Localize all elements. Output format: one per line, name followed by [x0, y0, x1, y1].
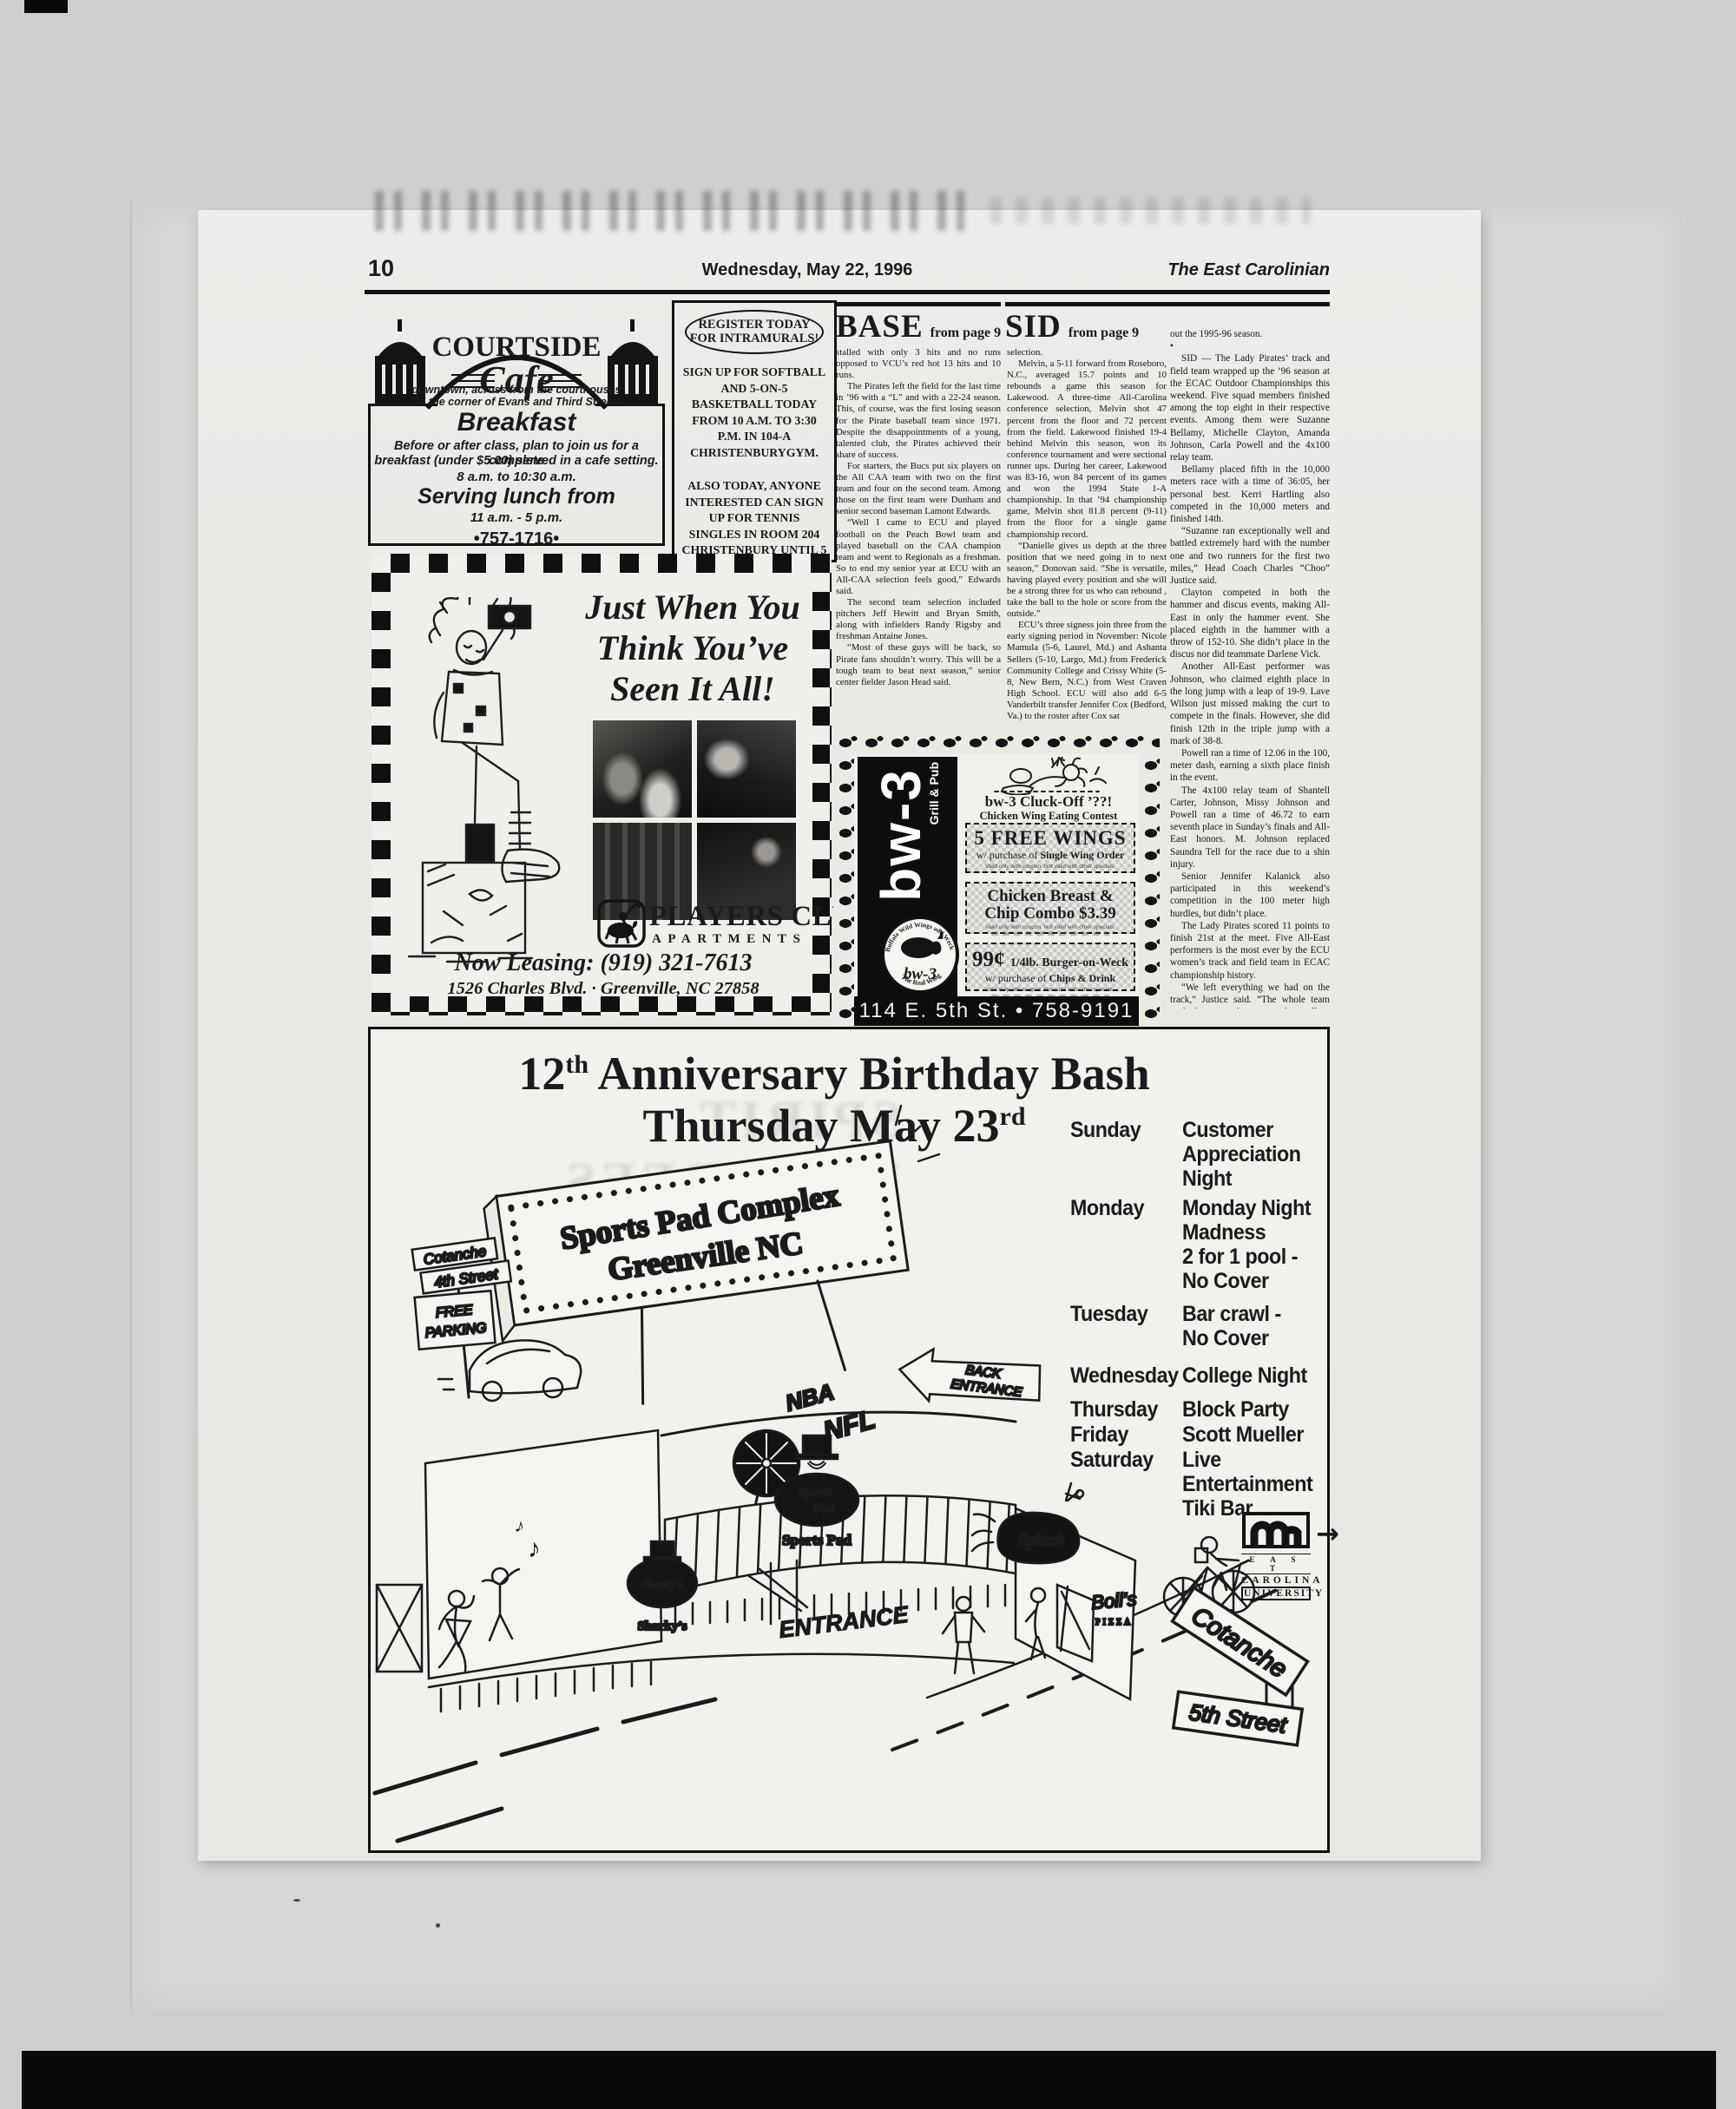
- free-parking-sign: FREE PARKING: [415, 1291, 496, 1349]
- bw3-address-bar: 114 E. 5th St. • 758-9191: [854, 996, 1139, 1026]
- ink-bleed-ghost-top: [375, 191, 983, 231]
- sid-section-bullet: •: [1170, 340, 1330, 352]
- svg-text:Pad: Pad: [812, 1501, 835, 1515]
- bw3-buffalo-border-top: [833, 732, 1160, 754]
- courtside-lunch-heading: Serving lunch from: [368, 484, 665, 509]
- publication-name: The East Carolinian: [1042, 260, 1330, 280]
- sid-paragraph: SID — The Lady Pirates’ track and field …: [1170, 352, 1330, 463]
- bw3-vertical-brand: bw-3 Grill & Pub: [859, 757, 957, 913]
- billboard-rays: [896, 1106, 939, 1161]
- wing-eater-cartoon: [969, 757, 1134, 795]
- base-paragraph: For starters, the Bucs put six players o…: [836, 461, 1001, 517]
- intramurals-body-1: SIGN UP FOR SOFTBALL AND 5-ON-5 BASKETBA…: [681, 365, 827, 461]
- coupon-fine-print: Valid only with coupon. Not valid with o…: [967, 864, 1134, 870]
- courtside-body-2: breakfast (under $5.00) served in a cafe…: [368, 454, 665, 469]
- bw3-logo-wordmark: bw-3: [904, 965, 937, 983]
- back-entrance-sign: BACK ENTRANCE: [896, 1345, 1043, 1415]
- bw3-round-logo: Buffalo Wild Wings and Weck The Real Win…: [880, 915, 960, 995]
- bw3-coupon-burger-weck: 99¢ 1/4lb. Burger-on-Weck w/ purchase of…: [965, 943, 1135, 991]
- bw3-buffalo-border-right: [1139, 754, 1160, 1047]
- coupon-headline: 5 FREE WINGS: [967, 828, 1134, 849]
- bw3-coupon-chicken-combo: Chicken Breast & Chip Combo $3.39 Valid …: [965, 882, 1135, 934]
- players-headline-line3: Seen It All!: [562, 668, 823, 709]
- coupon-fine-print: Valid only with coupon. Not valid with o…: [967, 987, 1134, 993]
- scan-black-bar: [22, 2051, 1716, 2109]
- coupon-item: 1/4lb. Burger-on-Weck: [1010, 956, 1128, 969]
- svg-text:Splash: Splash: [1018, 1531, 1064, 1550]
- sid-paragraph: out the 1995-96 season.: [1170, 328, 1330, 340]
- players-leasing-phone: Now Leasing: (919) 321-7613: [399, 949, 807, 977]
- jester-illustration: [386, 597, 570, 989]
- sid-paragraph: Senior Jennifer Kalanick also participat…: [1170, 871, 1330, 920]
- intramurals-title-2: FOR INTRAMURALS!: [688, 332, 820, 345]
- polo-player-icon: [597, 899, 646, 948]
- scan-speck: [293, 1899, 300, 1902]
- base-paragraph: The Pirates left the field for the last …: [836, 381, 1001, 461]
- ecu-east: E A S T: [1241, 1554, 1311, 1574]
- bw3-grill-pub: Grill & Pub: [927, 762, 941, 825]
- ecu-university: UNIVERSITY: [1241, 1587, 1311, 1600]
- scanned-newspaper-page: { "page": { "number": "10", "date": "Wed…: [0, 0, 1736, 2109]
- bw3-buffalo-border-left: [833, 754, 854, 1047]
- coupon-sub-bold: Single Wing Order: [1040, 849, 1124, 861]
- sid-paragraph: Another All-East performer was Johnson, …: [1170, 660, 1330, 746]
- sid-article-headline: SIDfrom page 9: [1005, 308, 1139, 345]
- sid-paragraph: “We left everything we had on the track,…: [1170, 982, 1330, 1009]
- coupon-price: 99¢: [972, 948, 1010, 971]
- sid-paragraph: “Suzanne ran exceptionally well and batt…: [1170, 525, 1330, 587]
- coupon-sub-bold: Chips & Drink: [1049, 972, 1115, 984]
- players-headline-line1: Just When You: [562, 587, 823, 627]
- ecu-logo: E A S T CAROLINA UNIVERSITY: [1241, 1512, 1311, 1600]
- base-slug: BASE: [836, 309, 924, 345]
- doorway-figure: [943, 1597, 984, 1673]
- players-address: 1526 Charles Blvd. · Greenville, NC 2785…: [399, 979, 807, 999]
- road-dashes: [375, 1699, 715, 1841]
- courtside-cafe-ad: COURTSIDE Cafe downtown, across from the…: [368, 302, 665, 547]
- base-paragraph: “Well I came to ECU and played football …: [836, 517, 1001, 597]
- ecu-carolina: CAROLINA: [1241, 1574, 1311, 1587]
- base-article-body: stalled with only 3 hits and no runs opp…: [836, 347, 1001, 746]
- base-paragraph: stalled with only 3 hits and no runs opp…: [836, 347, 1001, 381]
- coupon-sub-prefix: w/ purchase of: [976, 849, 1041, 861]
- players-photo-1: [593, 720, 692, 818]
- sid-paragraph: Melvin, a 5-11 forward from Roseboro, N.…: [1007, 358, 1167, 541]
- sid-slug: SID: [1005, 309, 1062, 345]
- page-date: Wednesday, May 22, 1996: [521, 260, 1094, 280]
- sid-paragraph: selection.: [1007, 347, 1167, 358]
- header-rule: [365, 290, 1330, 294]
- bw3-wordmark: bw-3: [875, 757, 927, 913]
- courtside-lunch-hours: 11 a.m. - 5 p.m.: [368, 510, 665, 525]
- players-headline-line2: Think You’ve: [562, 627, 823, 668]
- svg-text:Sports: Sports: [799, 1486, 832, 1500]
- coupon-headline-2: Chip Combo $3.39: [967, 905, 1134, 923]
- sid-from-label: from page 9: [1069, 325, 1139, 340]
- base-article-rule: [836, 302, 1001, 306]
- courtside-breakfast-hours: 8 a.m. to 10:30 a.m.: [368, 470, 665, 484]
- illegible-fine-print: [991, 932, 1109, 936]
- bolis-pizza-label: PIZZA: [1095, 1618, 1133, 1627]
- sharkys-caption: Sharky’s: [638, 1620, 687, 1633]
- sid-paragraph: Powell ran a time of 12.06 in the 100, m…: [1170, 747, 1330, 785]
- players-photo-2: [697, 720, 796, 818]
- sid-article-rule: [1005, 302, 1330, 306]
- bw3-contest-title: bw-3 Cluck-Off ’??!: [962, 793, 1135, 811]
- players-club-apartments: APARTMENTS: [652, 932, 806, 947]
- courtside-phone: •757-1716•: [368, 529, 665, 549]
- bolis-label: Boli’s: [1090, 1588, 1137, 1613]
- players-photo-grid: [593, 720, 796, 920]
- sportspad-caption: Sports Pad: [782, 1532, 852, 1548]
- base-paragraph: “Most of these guys will be back, so Pir…: [836, 642, 1001, 687]
- sid-paragraph: Bellamy placed fifth in the 10,000 meter…: [1170, 463, 1330, 525]
- sid-paragraph: ECU’s three signess join three from the …: [1007, 620, 1167, 722]
- ink-bleed-ghost-top-2: [990, 198, 1311, 224]
- coupon-fine-print: Valid only with coupon. Not valid with o…: [967, 924, 1134, 930]
- coupon-sub-prefix: w/ purchase of: [985, 972, 1049, 984]
- scan-speck: [436, 1923, 440, 1928]
- courtside-tagline-1: downtown, across from the courthouses: [368, 384, 665, 396]
- base-article-headline: BASEfrom page 9: [836, 308, 1001, 345]
- bw3-coupon-free-wings: 5 FREE WINGS w/ purchase of Single Wing …: [965, 823, 1135, 873]
- base-from-label: from page 9: [930, 325, 1001, 340]
- svg-text:Sharky’s: Sharky’s: [641, 1579, 683, 1592]
- sid-article-column-2: out the 1995-96 season. • SID — The Lady…: [1170, 328, 1330, 1009]
- page-number: 10: [368, 255, 394, 282]
- sportspad-illustration: Sports Pad Complex Greenville NC Cotanch…: [372, 1029, 1326, 1850]
- ecu-cupola-icon: [1242, 1512, 1310, 1548]
- sid-article-column-1: selection. Melvin, a 5-11 forward from R…: [1007, 347, 1167, 743]
- sid-paragraph: “Danielle gives us depth at the three po…: [1007, 541, 1167, 621]
- intramurals-title-1: REGISTER TODAY: [688, 318, 820, 332]
- courtside-tagline-2: On the corner of Evans and Third Streets: [368, 396, 665, 408]
- players-ad-headline: Just When You Think You’ve Seen It All!: [562, 587, 823, 709]
- bw3-contest-subtitle: Chicken Wing Eating Contest: [962, 810, 1135, 823]
- sid-paragraph: Clayton competed in both the hammer and …: [1170, 587, 1330, 660]
- base-paragraph: The second team selection included pitch…: [836, 597, 1001, 642]
- nba-label: NBA: [783, 1378, 837, 1416]
- sid-paragraph: The 4x100 relay team of Shantell Carter,…: [1170, 785, 1330, 871]
- car-sketch: [438, 1340, 581, 1401]
- music-note-icon: ♪: [528, 1534, 541, 1563]
- intramurals-ad: REGISTER TODAY FOR INTRAMURALS! SIGN UP …: [672, 300, 837, 562]
- courtside-breakfast-heading: Breakfast: [368, 408, 665, 437]
- coupon-headline: Chicken Breast &: [967, 888, 1134, 905]
- scan-edge-mark: [24, 0, 68, 13]
- intramurals-title: REGISTER TODAY FOR INTRAMURALS!: [685, 310, 824, 354]
- arrow-right-icon: →: [1316, 1517, 1339, 1550]
- sid-paragraph: The Lady Pirates scored 11 points to fin…: [1170, 920, 1330, 982]
